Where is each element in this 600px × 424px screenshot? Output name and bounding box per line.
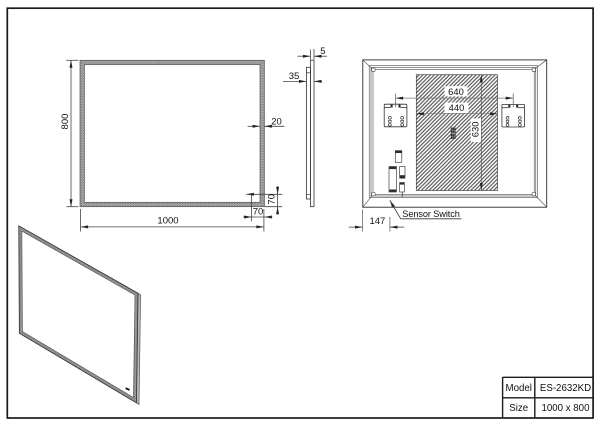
svg-text:1000: 1000 bbox=[157, 215, 178, 226]
svg-text:440: 440 bbox=[449, 102, 465, 113]
svg-text:70: 70 bbox=[253, 206, 264, 217]
svg-text:800: 800 bbox=[60, 114, 71, 130]
svg-text:20: 20 bbox=[271, 116, 282, 127]
svg-text:Sensor Switch: Sensor Switch bbox=[402, 209, 459, 219]
svg-text:35: 35 bbox=[289, 71, 300, 82]
svg-text:147: 147 bbox=[369, 216, 385, 227]
svg-text:630: 630 bbox=[469, 122, 480, 138]
svg-text:1000 x 800: 1000 x 800 bbox=[542, 403, 591, 414]
svg-text:Size: Size bbox=[509, 403, 528, 414]
svg-text:Model: Model bbox=[506, 383, 532, 394]
svg-text:70: 70 bbox=[267, 194, 278, 205]
svg-text:640: 640 bbox=[448, 86, 464, 97]
svg-text:ES-2632KD: ES-2632KD bbox=[540, 383, 591, 394]
svg-text:5: 5 bbox=[320, 46, 325, 57]
